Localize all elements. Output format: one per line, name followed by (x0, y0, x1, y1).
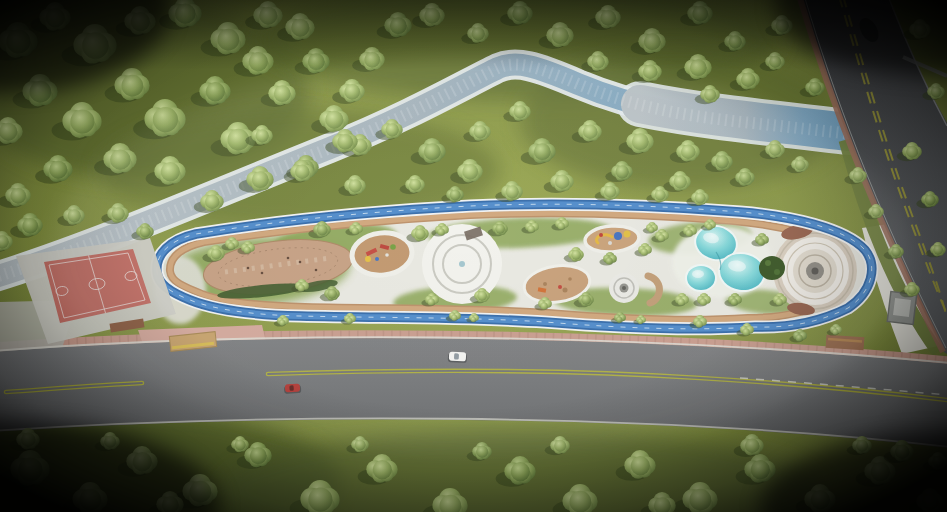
park-aerial-render (0, 0, 947, 512)
vignette (0, 0, 947, 512)
park-render-canvas (0, 0, 947, 512)
scene-root (0, 0, 947, 512)
